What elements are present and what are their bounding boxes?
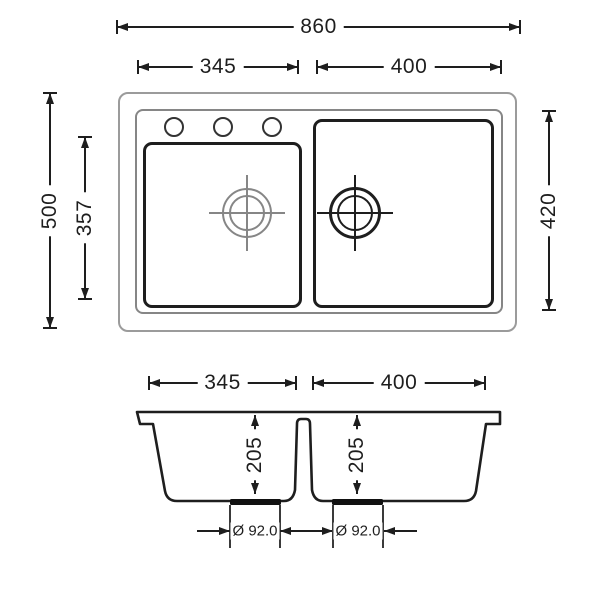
arrow-left-icon bbox=[280, 527, 291, 535]
sink-section-profile bbox=[0, 0, 600, 600]
left-drain-pad bbox=[230, 499, 281, 505]
dim-label-section-left-bowl-depth: 205 bbox=[244, 429, 266, 480]
leader-line bbox=[384, 530, 417, 532]
arrow-left-icon bbox=[384, 527, 395, 535]
section-outline bbox=[137, 412, 500, 501]
dim-label-right-drain-diameter: Ø 92.0 bbox=[333, 523, 382, 540]
right-drain-pad bbox=[332, 499, 383, 505]
dim-label-section-right-bowl-depth: 205 bbox=[346, 429, 368, 480]
arrow-up-icon bbox=[251, 415, 259, 426]
arrow-right-icon bbox=[219, 527, 230, 535]
leader-line bbox=[197, 530, 230, 532]
arrow-up-icon bbox=[353, 415, 361, 426]
sink-dimension-drawing: 860 345 400 500 357 420 bbox=[0, 0, 600, 600]
dim-label-left-drain-diameter: Ø 92.0 bbox=[230, 523, 279, 540]
shared-leader-line bbox=[280, 530, 333, 532]
arrow-down-icon bbox=[353, 483, 361, 494]
arrow-down-icon bbox=[251, 483, 259, 494]
